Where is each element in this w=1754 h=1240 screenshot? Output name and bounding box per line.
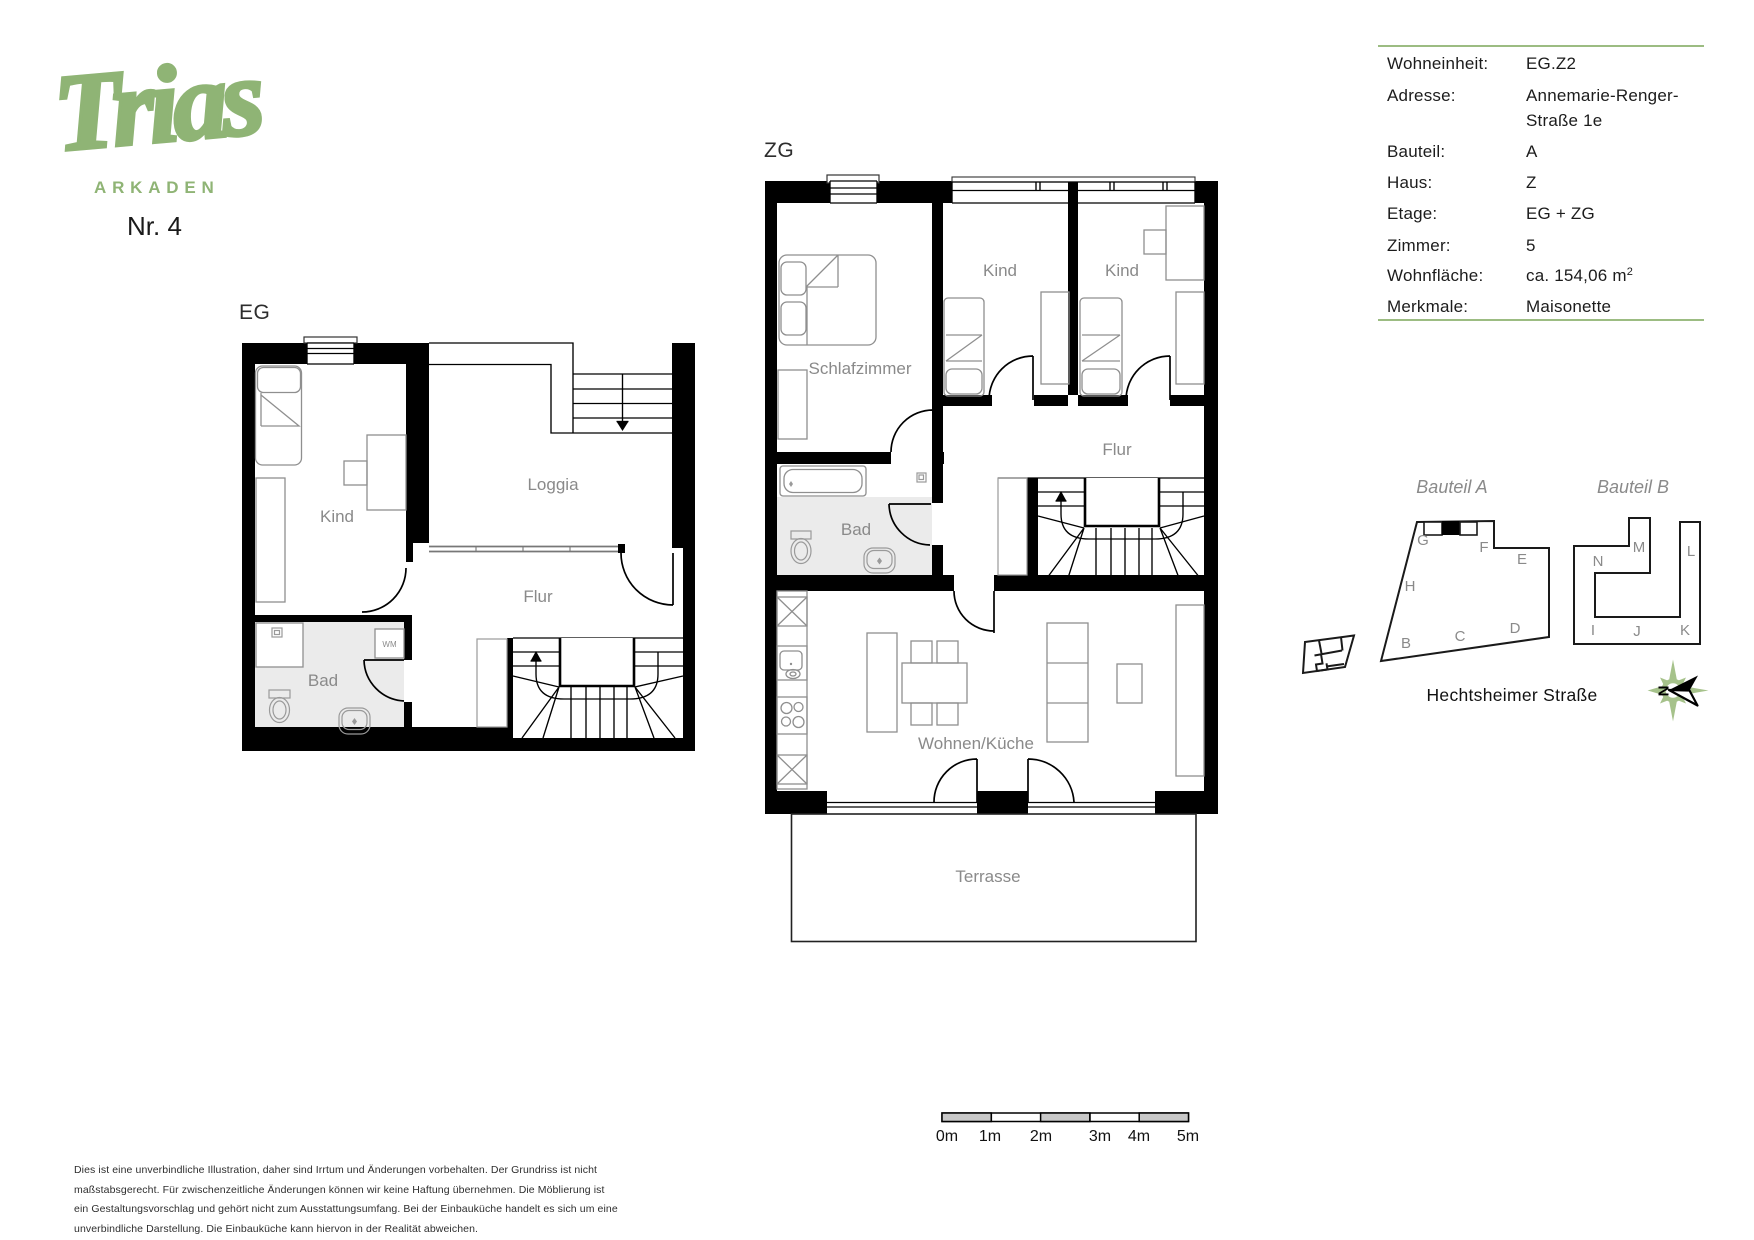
svg-text:Bad: Bad xyxy=(841,520,871,539)
svg-text:Flur: Flur xyxy=(1102,440,1132,459)
svg-text:Bauteil A: Bauteil A xyxy=(1416,477,1487,497)
svg-text:F: F xyxy=(1479,539,1488,556)
svg-text:M: M xyxy=(1633,539,1646,556)
svg-text:3m: 3m xyxy=(1089,1128,1111,1145)
svg-text:B: B xyxy=(1401,635,1411,652)
svg-text:WM: WM xyxy=(382,640,397,649)
svg-text:Bauteil B: Bauteil B xyxy=(1597,477,1669,497)
svg-text:C: C xyxy=(1455,628,1466,645)
svg-text:N: N xyxy=(1655,686,1672,697)
svg-text:I: I xyxy=(1591,622,1595,639)
svg-text:Terrasse: Terrasse xyxy=(955,867,1020,886)
svg-text:Bad: Bad xyxy=(308,671,338,690)
svg-text:Wohnen/Küche: Wohnen/Küche xyxy=(918,734,1034,753)
svg-text:Kind: Kind xyxy=(320,507,354,526)
svg-text:G: G xyxy=(1417,532,1429,549)
svg-text:1m: 1m xyxy=(979,1128,1001,1145)
svg-text:Hechtsheimer Straße: Hechtsheimer Straße xyxy=(1426,685,1597,705)
svg-text:Kind: Kind xyxy=(983,261,1017,280)
svg-text:Schlafzimmer: Schlafzimmer xyxy=(809,359,912,378)
svg-text:E: E xyxy=(1517,551,1527,568)
svg-text:N: N xyxy=(1593,553,1604,570)
svg-text:D: D xyxy=(1510,620,1521,637)
svg-text:Flur: Flur xyxy=(523,587,553,606)
svg-text:0m: 0m xyxy=(936,1128,958,1145)
svg-text:J: J xyxy=(1633,623,1641,640)
svg-text:5m: 5m xyxy=(1177,1128,1199,1145)
svg-text:K: K xyxy=(1680,622,1690,639)
svg-text:2m: 2m xyxy=(1030,1128,1052,1145)
svg-text:H: H xyxy=(1405,578,1416,595)
svg-text:Loggia: Loggia xyxy=(527,475,579,494)
svg-text:Kind: Kind xyxy=(1105,261,1139,280)
svg-text:L: L xyxy=(1687,543,1695,560)
svg-text:4m: 4m xyxy=(1128,1128,1150,1145)
